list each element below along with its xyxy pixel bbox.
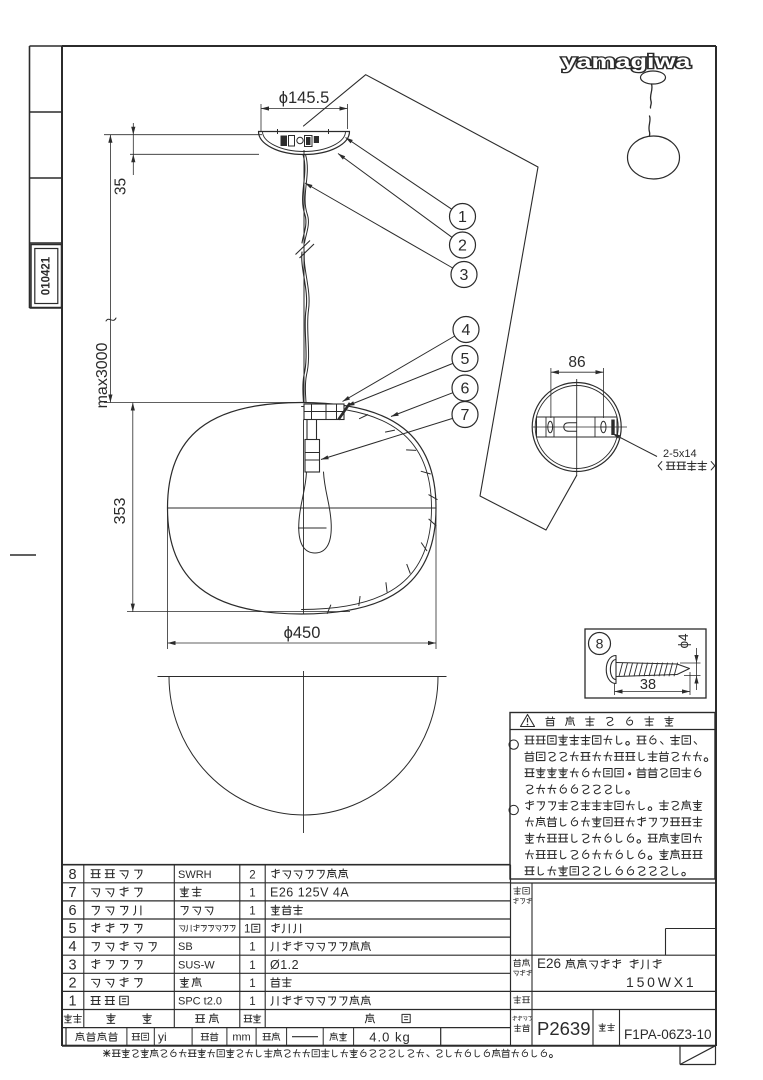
svg-text:Ø1.2: Ø1.2 [270,958,299,972]
svg-text:ϕ450: ϕ450 [284,624,321,642]
svg-text:86: 86 [568,354,585,371]
svg-text:E26 125V 4A: E26 125V 4A [270,886,349,900]
svg-text:mm: mm [232,1032,250,1044]
svg-text:1: 1 [249,942,255,954]
svg-text:SPC t2.0: SPC t2.0 [178,995,222,1007]
svg-text:3: 3 [68,957,76,973]
svg-text:5: 5 [461,351,470,368]
svg-text:E26: E26 [537,956,561,971]
svg-text:ϕ145.5: ϕ145.5 [279,89,330,107]
svg-text:35: 35 [113,178,130,195]
svg-text:P2639: P2639 [537,1018,591,1039]
svg-text:1: 1 [249,887,255,899]
svg-text:1: 1 [249,905,255,917]
svg-text:7: 7 [68,885,76,901]
svg-text:1: 1 [249,960,255,972]
svg-text:1: 1 [249,996,255,1008]
svg-text:353: 353 [112,498,129,525]
svg-text:8: 8 [596,636,604,652]
svg-text:yamagiwa: yamagiwa [562,51,692,72]
svg-text:150WX1: 150WX1 [626,974,697,990]
svg-text:3: 3 [460,267,469,284]
svg-text:yi: yi [158,1030,167,1044]
svg-text:7: 7 [461,407,470,424]
svg-text:4: 4 [68,939,76,955]
svg-text:F1PA-06Z3-10: F1PA-06Z3-10 [624,1027,712,1042]
svg-text:1: 1 [249,978,255,990]
svg-text:4.0 kg: 4.0 kg [369,1030,410,1045]
svg-text:2-5x14: 2-5x14 [663,448,697,460]
svg-text:8: 8 [68,867,76,883]
svg-text:5: 5 [68,921,76,937]
svg-text:2: 2 [458,238,467,255]
svg-text:6: 6 [461,381,470,398]
svg-text:4: 4 [462,322,471,339]
svg-text:SWRH: SWRH [178,869,212,881]
svg-text:2: 2 [249,869,255,881]
svg-text:38: 38 [640,677,656,693]
svg-text:ϕ4: ϕ4 [676,633,691,649]
svg-text:1: 1 [458,209,467,226]
svg-text:SUS-W: SUS-W [178,959,215,971]
svg-text:6: 6 [68,903,76,919]
svg-text:1: 1 [68,993,76,1009]
svg-text:1: 1 [244,924,250,936]
svg-text:max3000: max3000 [94,342,111,408]
svg-text:SB: SB [178,941,193,953]
svg-text:010421: 010421 [41,256,53,295]
svg-text:2: 2 [68,975,76,991]
